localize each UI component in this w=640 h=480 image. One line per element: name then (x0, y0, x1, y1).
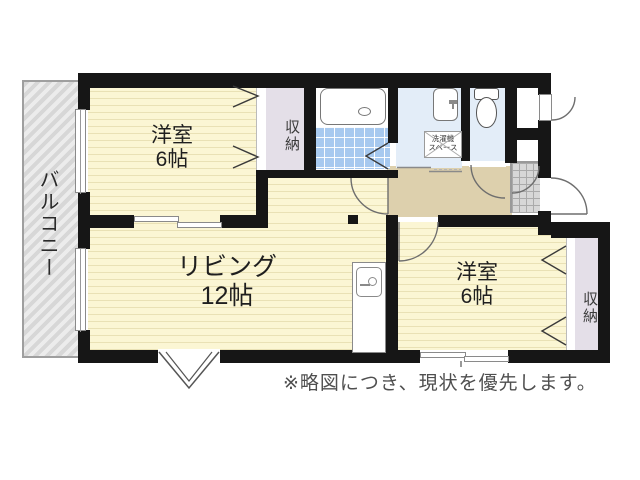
bathroom-tile-floor (314, 127, 390, 169)
genkan-step-line (510, 163, 512, 213)
closet-top-label: 収納 (272, 108, 302, 164)
bedroom-right-size: 6帖 (397, 285, 557, 309)
door-arc-entrance (551, 178, 587, 214)
disclaimer-note: ※略図につき、現状を優先します。 (283, 368, 597, 395)
window-center-tick (460, 361, 462, 367)
wall-bottom-1 (78, 350, 160, 363)
sliding-door-bedroomtop-panel1 (134, 216, 179, 222)
bedroom-top-name: 洋室 (92, 124, 252, 148)
wall-bottom-3 (508, 350, 610, 363)
closet-right-label: 収納 (572, 280, 600, 336)
bedroom-top-size: 6帖 (92, 148, 252, 172)
meterbox-door-leaf (539, 94, 552, 121)
toilet-bowl-icon (476, 97, 497, 128)
window-mullion (80, 249, 81, 332)
door-arc-meterbox (552, 97, 575, 120)
living-label: リビング 12帖 (117, 253, 337, 311)
toilet-door-threshold (469, 161, 506, 167)
window-bedroom-top (75, 109, 86, 193)
living-size: 12帖 (117, 282, 337, 311)
bedroom-right-label: 洋室 6帖 (397, 261, 557, 309)
hallway-floor (388, 166, 512, 217)
window-bedroomright-panel1 (420, 352, 466, 358)
wall-left-1 (78, 73, 90, 110)
window-bedroomright-panel2 (464, 356, 509, 362)
washbasin-faucet-stem (452, 104, 454, 109)
laundry-line2: スペース (424, 143, 462, 152)
wall-washroom-toilet (461, 85, 470, 161)
window-mullion (80, 110, 81, 194)
wall-under-bath (256, 170, 398, 178)
window-living (75, 248, 86, 331)
washbasin-icon (433, 88, 458, 121)
laundry-line1: 洗濯機 (424, 134, 462, 143)
wall-meterbox-divider (505, 128, 551, 140)
wall-bedroomtop-bottom-1 (88, 215, 134, 228)
genkan-tile (512, 163, 540, 213)
wall-right-1 (538, 73, 551, 95)
wall-toilet-right (505, 85, 517, 163)
kitchen-faucet-lever (360, 284, 370, 286)
laundry-space-label: 洗濯機 スペース (424, 134, 462, 152)
balcony-label: バルコニー (28, 164, 62, 284)
floorplan-canvas: バルコニー (0, 0, 640, 480)
bathtub-icon (320, 88, 386, 125)
sliding-door-bedroomtop-panel2 (177, 222, 222, 228)
living-name: リビング (117, 253, 337, 282)
wall-nook-left (256, 171, 268, 224)
living-nook-floor (266, 178, 388, 218)
wall-hall-bottom-2 (438, 215, 551, 227)
wall-bath-washroom (388, 85, 398, 143)
bathtub-drain-icon (358, 107, 371, 116)
wall-closet-bath (304, 85, 316, 178)
wall-door-stub (348, 215, 358, 224)
bedroom-top-label: 洋室 6帖 (92, 124, 252, 172)
bedroom-right-name: 洋室 (397, 261, 557, 285)
bay-window-opening (158, 349, 220, 363)
